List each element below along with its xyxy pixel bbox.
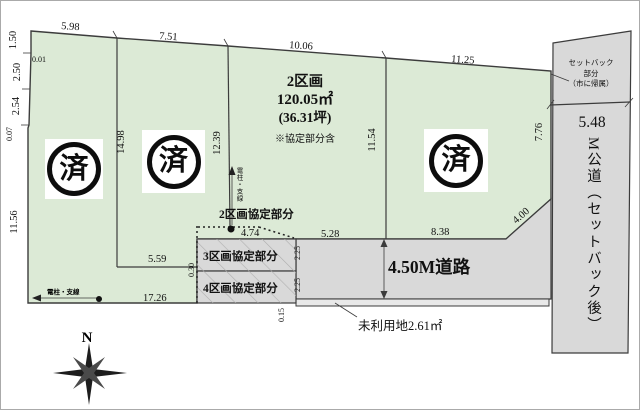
pole-left-label: 電柱・支線	[47, 287, 80, 296]
lot4-agreement-label: 4区画協定部分	[203, 281, 278, 295]
dim-lot2-south: 5.28	[321, 229, 339, 240]
east-road-label: M公道（セットバック後）	[583, 137, 604, 355]
setback-note-block: セットバック 部分 （市に帰属）	[551, 58, 631, 90]
dim-top-1: 5.98	[61, 21, 80, 33]
sold-stamp-lot1: 済	[45, 139, 103, 199]
sold-stamp-lot-d: 済	[424, 129, 488, 192]
lot2-info-block: 2区画 120.05㎡ (36.31坪) ※協定部分含	[241, 73, 369, 146]
lot2-agreement-label: 2区画協定部分	[219, 207, 294, 221]
unused-land-label: 未利用地2.61㎡	[358, 315, 442, 334]
dim-left-6: 11.56	[9, 210, 20, 233]
setback-note-line2: 部分	[551, 69, 631, 80]
dim-agreement-width: 4.74	[241, 228, 260, 239]
dim-lot-b-bottom: 5.59	[148, 254, 166, 265]
plan-svg: N 5.98 7.51 10.06 11.25 1.50 0.01 2.50 2…	[1, 1, 640, 410]
sold-stamp-circle: 済	[147, 135, 201, 189]
lot2-area-m2: 120.05㎡	[241, 91, 369, 110]
south-road-label: 4.50M道路	[388, 254, 470, 279]
dim-small-030: 0.30	[187, 263, 196, 277]
dim-left-2: 0.01	[32, 55, 46, 64]
dim-left-5: 0.07	[5, 127, 14, 141]
dim-small-015: 0.15	[277, 308, 286, 322]
pole-center-label: 電柱・支線	[233, 167, 243, 202]
plot-plan-canvas: N 5.98 7.51 10.06 11.25 1.50 0.01 2.50 2…	[0, 0, 640, 410]
dim-right-edge: 7.76	[534, 123, 545, 141]
dim-small-225a: 2.25	[293, 246, 302, 260]
lot2-area-tsubo: (36.31坪)	[241, 110, 369, 127]
dim-top-2: 7.51	[159, 31, 178, 43]
pole-left-dot	[96, 296, 102, 302]
dim-top-3: 10.06	[289, 40, 313, 53]
dim-divider-1: 14.98	[116, 130, 127, 154]
dim-site-bottom: 17.26	[143, 293, 167, 304]
unused-land-strip	[296, 299, 549, 306]
east-road-width: 5.48	[559, 114, 625, 132]
pole-center-dot	[228, 226, 235, 233]
dim-lot-d-south: 8.38	[431, 227, 449, 238]
dim-left-1: 1.50	[8, 31, 19, 49]
lot3-agreement-label: 3区画協定部分	[203, 249, 278, 263]
lot2-name: 2区画	[241, 73, 369, 91]
dim-divider-2: 12.39	[212, 131, 223, 155]
sold-stamp-circle: 済	[47, 142, 101, 196]
setback-note-line3: （市に帰属）	[551, 79, 631, 90]
setback-note-line1: セットバック	[551, 58, 631, 69]
dim-left-4: 2.54	[11, 96, 22, 115]
dim-top-4: 11.25	[451, 54, 475, 67]
lot2-note: ※協定部分含	[241, 134, 369, 147]
sold-stamp-circle: 済	[429, 134, 483, 188]
dim-left-3: 2.50	[12, 63, 23, 81]
sold-stamp-lot-b: 済	[142, 130, 205, 193]
compass-north-label: N	[82, 330, 93, 346]
dim-small-225b: 2.25	[293, 278, 302, 292]
